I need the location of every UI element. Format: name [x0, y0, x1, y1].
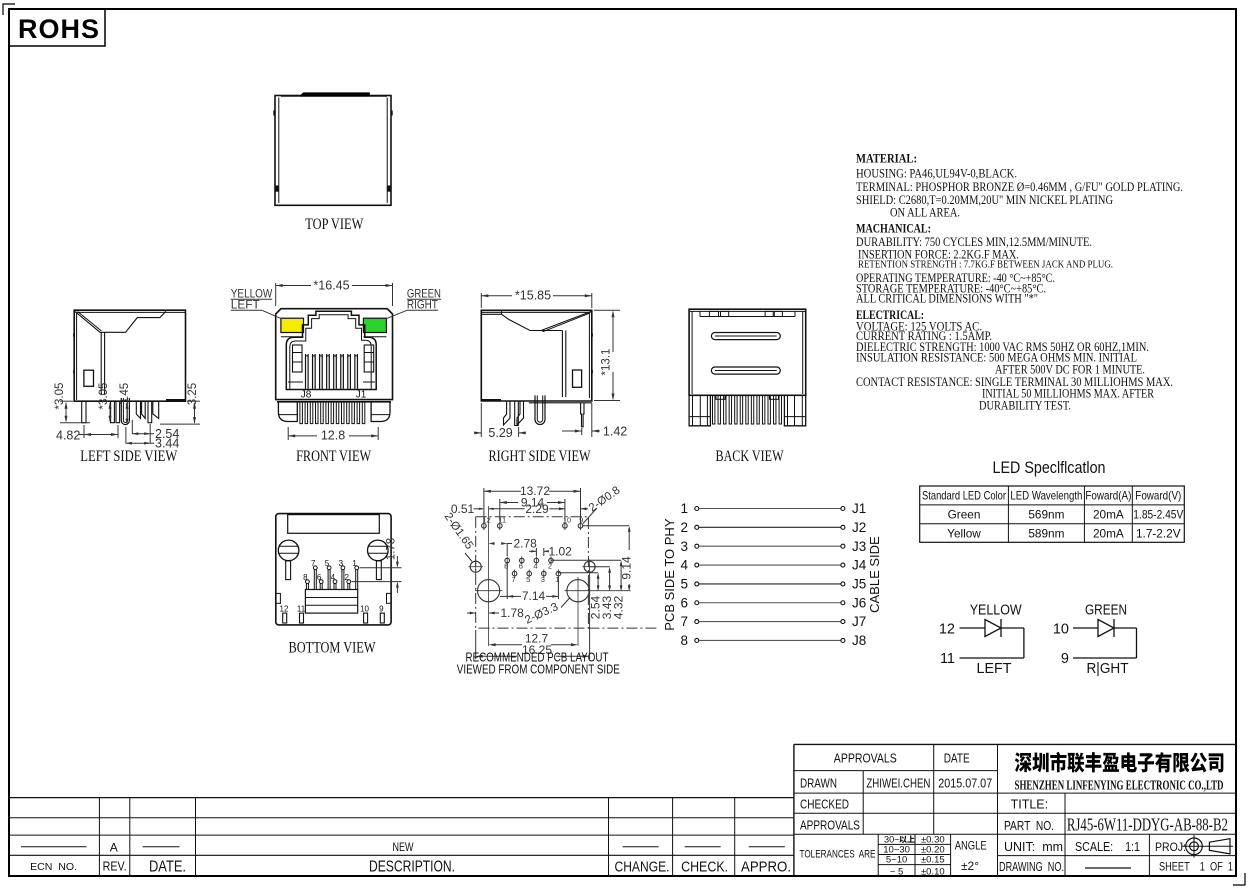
svg-text:5~10: 5~10 [886, 855, 907, 866]
svg-text:11: 11 [297, 605, 306, 614]
svg-text:J5: J5 [852, 577, 866, 592]
svg-text:Foward(A): Foward(A) [1085, 489, 1131, 503]
svg-text:CHECK.: CHECK. [681, 858, 728, 875]
svg-text:PART NO.: PART NO. [1004, 819, 1054, 833]
svg-text:9.14: 9.14 [620, 556, 634, 580]
svg-text:±2°: ±2° [961, 859, 979, 873]
svg-text:APPRO.: APPRO. [741, 858, 791, 875]
svg-text:J3: J3 [852, 539, 866, 554]
svg-text:7: 7 [512, 575, 516, 584]
svg-text:8: 8 [303, 573, 308, 582]
svg-text:11: 11 [940, 651, 955, 667]
svg-text:1: 1 [680, 501, 688, 516]
svg-text:LED Wavelength: LED Wavelength [1010, 489, 1082, 503]
svg-text:CHECKED: CHECKED [800, 798, 849, 812]
svg-text:6: 6 [680, 595, 688, 610]
svg-text:J8: J8 [852, 633, 866, 648]
svg-text:10: 10 [360, 605, 369, 614]
svg-text:3.25: 3.25 [187, 383, 199, 405]
svg-text:SHENZHEN LINFENYING ELECTRONIC: SHENZHEN LINFENYING ELECTRONIC CO.,LTD [1015, 777, 1224, 792]
svg-text:12.8: 12.8 [321, 429, 345, 443]
svg-text:9: 9 [1061, 651, 1069, 667]
svg-text:Standard LED Color: Standard LED Color [922, 489, 1006, 503]
svg-text:7: 7 [311, 559, 316, 568]
svg-text:2: 2 [344, 573, 349, 582]
svg-text:NEW: NEW [393, 842, 414, 854]
svg-text:*15.85: *15.85 [515, 289, 551, 303]
svg-text:R|GHT: R|GHT [1087, 661, 1129, 677]
svg-text:*3.05: *3.05 [98, 383, 110, 410]
svg-text:TITLE:: TITLE: [1011, 797, 1049, 811]
svg-text:BACK VIEW: BACK VIEW [716, 448, 784, 465]
svg-text:*13.1: *13.1 [601, 349, 613, 376]
svg-text:GREEN: GREEN [1085, 603, 1127, 619]
svg-text:FRONT VIEW: FRONT VIEW [296, 448, 371, 465]
svg-text:ZHIWEI.CHEN: ZHIWEI.CHEN [866, 777, 930, 791]
svg-text:J7: J7 [852, 614, 866, 629]
svg-text:1.78: 1.78 [501, 606, 525, 620]
svg-text:PCB SIDE TO PHY: PCB SIDE TO PHY [662, 518, 677, 631]
svg-text:ON ALL AREA.: ON ALL AREA. [890, 206, 960, 220]
svg-text:J2: J2 [852, 520, 866, 535]
svg-text:5: 5 [325, 559, 330, 568]
svg-text:1.78: 1.78 [386, 538, 398, 560]
svg-text:10: 10 [1053, 622, 1069, 638]
svg-text:DRAWING NO.: DRAWING NO. [999, 860, 1064, 874]
svg-text:MACHANICAL:: MACHANICAL: [856, 222, 931, 236]
svg-text:HOUSING: PA46,UL94V-0,BLACK.: HOUSING: PA46,UL94V-0,BLACK. [856, 167, 1017, 181]
svg-text:2: 2 [548, 562, 552, 571]
svg-text:4: 4 [331, 573, 336, 582]
svg-text:J8: J8 [301, 390, 312, 401]
svg-text:SCALE: 1:1: SCALE: 1:1 [1075, 840, 1140, 854]
svg-text:DATE: DATE [944, 752, 970, 766]
svg-text:8: 8 [680, 633, 688, 648]
svg-text:J6: J6 [852, 595, 866, 610]
svg-text:LEFT SIDE VIEW: LEFT SIDE VIEW [80, 448, 177, 465]
svg-text:3: 3 [339, 559, 344, 568]
svg-text:CHANGE.: CHANGE. [615, 858, 670, 875]
svg-text:±0.10: ±0.10 [921, 867, 945, 878]
svg-text:2015.07.07: 2015.07.07 [938, 777, 992, 791]
svg-text:ECN NO.: ECN NO. [30, 861, 77, 873]
svg-text:2.78: 2.78 [514, 537, 538, 551]
svg-text:2: 2 [680, 520, 688, 535]
svg-text:Foward(V): Foward(V) [1135, 489, 1181, 503]
svg-text:1.7-2.2V: 1.7-2.2V [1136, 527, 1181, 541]
svg-text:A: A [110, 841, 118, 855]
svg-text:APPROVALS: APPROVALS [834, 752, 897, 766]
svg-text:30~: 30~ [884, 834, 900, 844]
svg-text:DURABILITY TEST.: DURABILITY TEST. [979, 398, 1071, 412]
svg-text:6: 6 [519, 562, 523, 571]
svg-text:REV.: REV. [103, 860, 127, 874]
svg-text:20mA: 20mA [1093, 508, 1124, 522]
svg-text:Green: Green [948, 508, 981, 522]
svg-text:RJ45-6W11-DDYG-AB-88-B2: RJ45-6W11-DDYG-AB-88-B2 [1067, 815, 1228, 835]
svg-text:Yellow: Yellow [947, 527, 981, 541]
svg-text:DATE.: DATE. [149, 858, 186, 875]
svg-text:~ 5: ~ 5 [890, 867, 903, 878]
svg-text:1: 1 [352, 559, 357, 568]
svg-text:J1: J1 [852, 501, 866, 516]
svg-text:*3.05: *3.05 [54, 383, 66, 410]
svg-text:SHEET 1 OF 1: SHEET 1 OF 1 [1159, 860, 1233, 874]
svg-text:YELLOW: YELLOW [970, 603, 1022, 619]
svg-text:MATERIAL:: MATERIAL: [856, 151, 917, 165]
svg-text:3: 3 [541, 575, 545, 584]
svg-text:4: 4 [533, 562, 537, 571]
svg-text:BOTTOM VIEW: BOTTOM VIEW [289, 640, 376, 657]
svg-text:9: 9 [379, 605, 384, 614]
svg-text:PROJ:: PROJ: [1155, 840, 1186, 854]
svg-text:7.14: 7.14 [522, 589, 546, 603]
svg-text:12: 12 [280, 605, 289, 614]
svg-text:DRAWN: DRAWN [800, 777, 837, 791]
svg-text:10: 10 [563, 516, 571, 525]
svg-text:ALL CRITICAL DIMENSIONS WITH ": ALL CRITICAL DIMENSIONS WITH "*" [856, 292, 1038, 306]
svg-text:20mA: 20mA [1093, 527, 1124, 541]
svg-text:5: 5 [526, 575, 530, 584]
svg-text:6: 6 [317, 573, 322, 582]
svg-text:DESCRIPTION.: DESCRIPTION. [369, 858, 455, 875]
svg-text:4: 4 [680, 558, 688, 573]
svg-text:RETENTION STRENGTH : 7.7KG.F B: RETENTION STRENGTH : 7.7KG.F BETWEEN JAC… [858, 260, 1113, 271]
svg-text:589nm: 589nm [1028, 527, 1064, 541]
svg-text:7: 7 [680, 614, 688, 629]
svg-text:J1: J1 [356, 390, 367, 401]
svg-text:LED Speclflcatlon: LED Speclflcatlon [993, 459, 1106, 477]
svg-text:4.82: 4.82 [56, 428, 80, 442]
svg-text:1.42: 1.42 [603, 425, 627, 439]
svg-text:*16.45: *16.45 [313, 278, 349, 292]
svg-text:TOP VIEW: TOP VIEW [305, 216, 363, 233]
svg-text:RIGHT SIDE VIEW: RIGHT SIDE VIEW [489, 448, 591, 465]
svg-text:TOLERANCES ARE: TOLERANCES ARE [800, 849, 876, 861]
svg-text:5.29: 5.29 [488, 426, 512, 440]
svg-text:5: 5 [680, 577, 688, 592]
svg-text:APPROVALS: APPROVALS [800, 819, 860, 833]
svg-text:CABLE SIDE: CABLE SIDE [867, 536, 882, 613]
svg-text:±0.15: ±0.15 [921, 855, 945, 866]
svg-text:J4: J4 [852, 558, 867, 573]
svg-text:1.85-2.45V: 1.85-2.45V [1133, 508, 1183, 522]
svg-text:569nm: 569nm [1028, 508, 1064, 522]
svg-text:4.32: 4.32 [612, 595, 626, 619]
svg-text:ROHS: ROHS [18, 14, 100, 44]
svg-text:2.29: 2.29 [525, 502, 549, 516]
svg-text:ANGLE: ANGLE [955, 839, 987, 853]
svg-text:LEFT: LEFT [977, 661, 1012, 677]
svg-text:3: 3 [680, 539, 688, 554]
svg-text:VIEWED FROM COMPONENT SIDE: VIEWED FROM COMPONENT SIDE [457, 662, 620, 677]
svg-text:UNIT: mm: UNIT: mm [1004, 840, 1063, 854]
svg-text:3.45: 3.45 [119, 383, 131, 405]
svg-text:1.02: 1.02 [549, 544, 573, 558]
svg-text:12: 12 [939, 622, 955, 638]
